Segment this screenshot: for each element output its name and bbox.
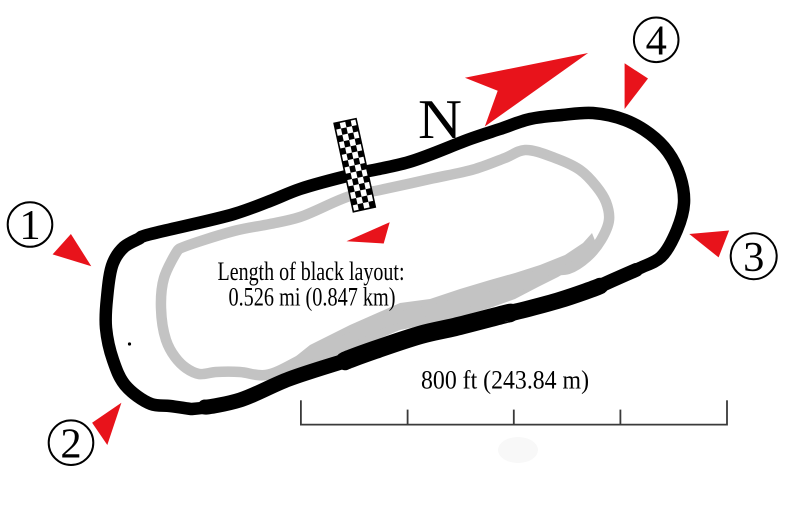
svg-text:3: 3	[743, 234, 764, 281]
svg-text:4: 4	[646, 17, 667, 64]
svg-text:0.526 mi (0.847 km): 0.526 mi (0.847 km)	[229, 281, 396, 311]
svg-text:800 ft (243.84 m): 800 ft (243.84 m)	[421, 365, 589, 395]
svg-text:2: 2	[60, 420, 81, 467]
svg-text:N: N	[418, 89, 462, 151]
svg-text:1: 1	[19, 202, 40, 249]
